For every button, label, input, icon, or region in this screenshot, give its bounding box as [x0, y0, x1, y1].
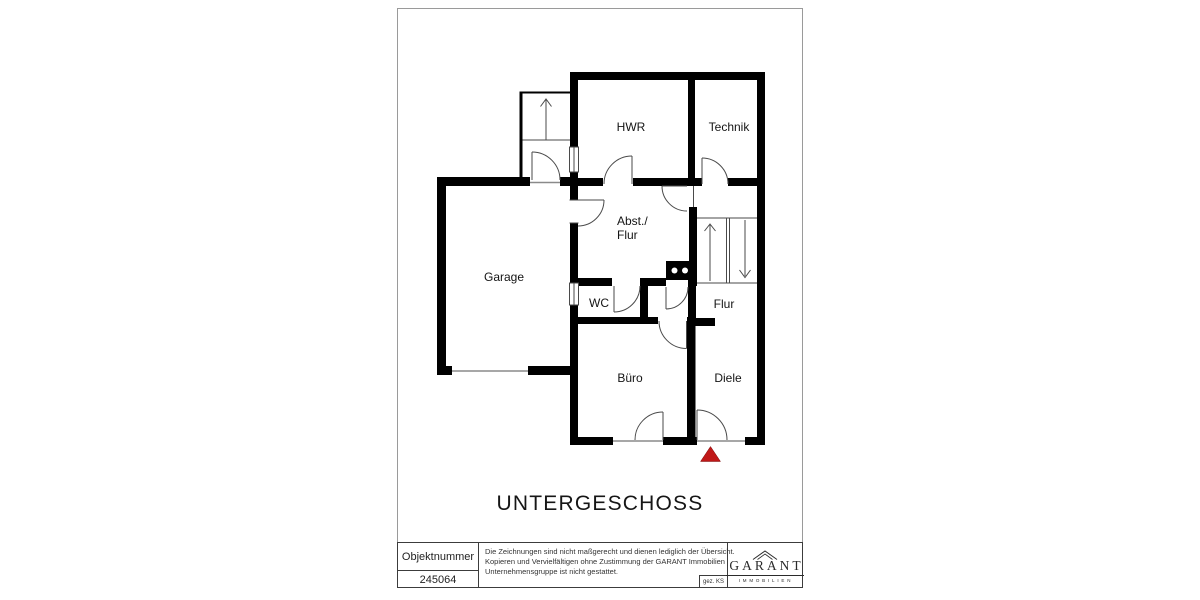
- wall-garage-left: [437, 177, 446, 375]
- footer-table: Objektnummer 245064 Die Zeichnungen sind…: [397, 542, 803, 588]
- room-label-buero: Büro: [617, 371, 642, 385]
- door-garage-abstflur: [578, 200, 604, 226]
- door-buero-exterior: [635, 412, 663, 440]
- stairs-exterior: [520, 92, 571, 177]
- room-label-technik: Technik: [709, 120, 750, 134]
- door-vestibule: [666, 287, 688, 309]
- objektnummer-label: Objektnummer: [398, 543, 478, 571]
- window-symbol-hwr: [570, 147, 579, 172]
- signature-text: gez. KS: [703, 579, 724, 585]
- window-symbol-wc: [570, 283, 579, 305]
- room-label-hwr: HWR: [617, 120, 646, 134]
- disclaimer-line-3: Unternehmensgruppe ist nicht gestattet.: [485, 567, 722, 577]
- disclaimer-line-1: Die Zeichnungen sind nicht maßgerecht un…: [485, 547, 722, 557]
- wall-abst-2: [640, 278, 666, 286]
- wall-garage-bottom-2: [528, 366, 578, 375]
- wall-mid-2: [633, 178, 702, 186]
- wall-bottom-1: [570, 437, 613, 445]
- room-label-abst-line2: Flur: [617, 228, 648, 242]
- wall-wc-right: [640, 286, 648, 317]
- wall-garage-bottom-1: [437, 366, 452, 375]
- thresholds: [452, 183, 745, 442]
- chimney-symbol: [666, 261, 694, 280]
- wall-garage-top-2: [560, 177, 578, 186]
- entrance-marker-icon: [701, 447, 721, 462]
- wall-hwr-technik: [688, 80, 695, 178]
- room-label-diele: Diele: [714, 371, 741, 385]
- door-opening-garage: [570, 200, 579, 223]
- disclaimer-cell: Die Zeichnungen sind nicht maßgerecht un…: [479, 543, 728, 587]
- objektnummer-cell: Objektnummer 245064: [398, 543, 479, 587]
- floor-title: UNTERGESCHOSS: [397, 492, 803, 516]
- signature-box: gez. KS: [699, 575, 727, 587]
- door-wc: [614, 286, 640, 312]
- door-opening-stair-landing: [689, 186, 698, 207]
- stairs-interior: [697, 218, 757, 283]
- room-label-wc: WC: [589, 296, 609, 310]
- door-hwr: [604, 156, 632, 184]
- wall-bottom-3: [745, 437, 765, 445]
- doors: [532, 152, 728, 440]
- garant-logo: GARANT IMMOBILIEN: [728, 543, 802, 587]
- wall-left: [570, 72, 578, 445]
- wall-vestibule-right: [688, 286, 696, 320]
- wall-buero-diele: [687, 317, 696, 445]
- wall-top: [570, 72, 765, 80]
- room-label-abst-flur: Abst./ Flur: [617, 214, 648, 242]
- logo-wordmark: GARANT: [726, 558, 803, 576]
- objektnummer-value: 245064: [398, 571, 478, 588]
- wall-wc-bottom: [570, 317, 658, 324]
- disclaimer-line-2: Kopieren und Vervielfältigen ohne Zustim…: [485, 557, 722, 567]
- logo-subtitle: IMMOBILIEN: [737, 578, 794, 583]
- wall-mid-3: [728, 178, 765, 186]
- room-label-flur: Flur: [714, 297, 735, 311]
- door-technik: [702, 158, 728, 184]
- wall-garage-top-1: [437, 177, 530, 186]
- door-diele-exterior: [697, 410, 727, 440]
- door-exterior-stair: [532, 152, 560, 180]
- room-label-abst-line1: Abst./: [617, 214, 648, 228]
- door-abstflur-stair: [662, 186, 687, 211]
- door-buero-interior: [659, 321, 687, 349]
- floorplan-page: HWR Technik Abst./ Flur Garage WC Flur B…: [0, 0, 1200, 600]
- wall-right: [757, 72, 765, 445]
- room-label-garage: Garage: [484, 270, 524, 284]
